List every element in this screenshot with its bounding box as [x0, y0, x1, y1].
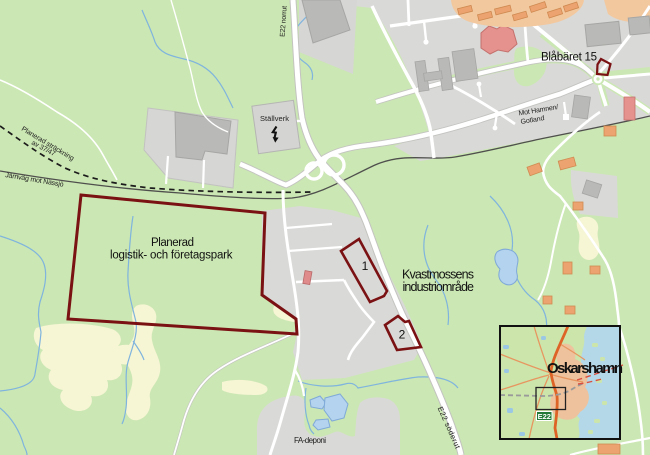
svg-text:Ställverk: Ställverk	[260, 114, 289, 123]
svg-text:industriområde: industriområde	[403, 280, 475, 294]
svg-text:Oskarshamn: Oskarshamn	[547, 360, 623, 377]
svg-text:1: 1	[362, 259, 369, 273]
svg-text:Blåbäret 15: Blåbäret 15	[541, 52, 597, 64]
svg-text:Planerad: Planerad	[151, 237, 194, 249]
svg-text:FA-deponi: FA-deponi	[294, 436, 326, 445]
svg-text:logistik- och företagspark: logistik- och företagspark	[110, 250, 233, 262]
svg-text:E22: E22	[538, 412, 551, 421]
svg-text:2: 2	[399, 328, 406, 342]
